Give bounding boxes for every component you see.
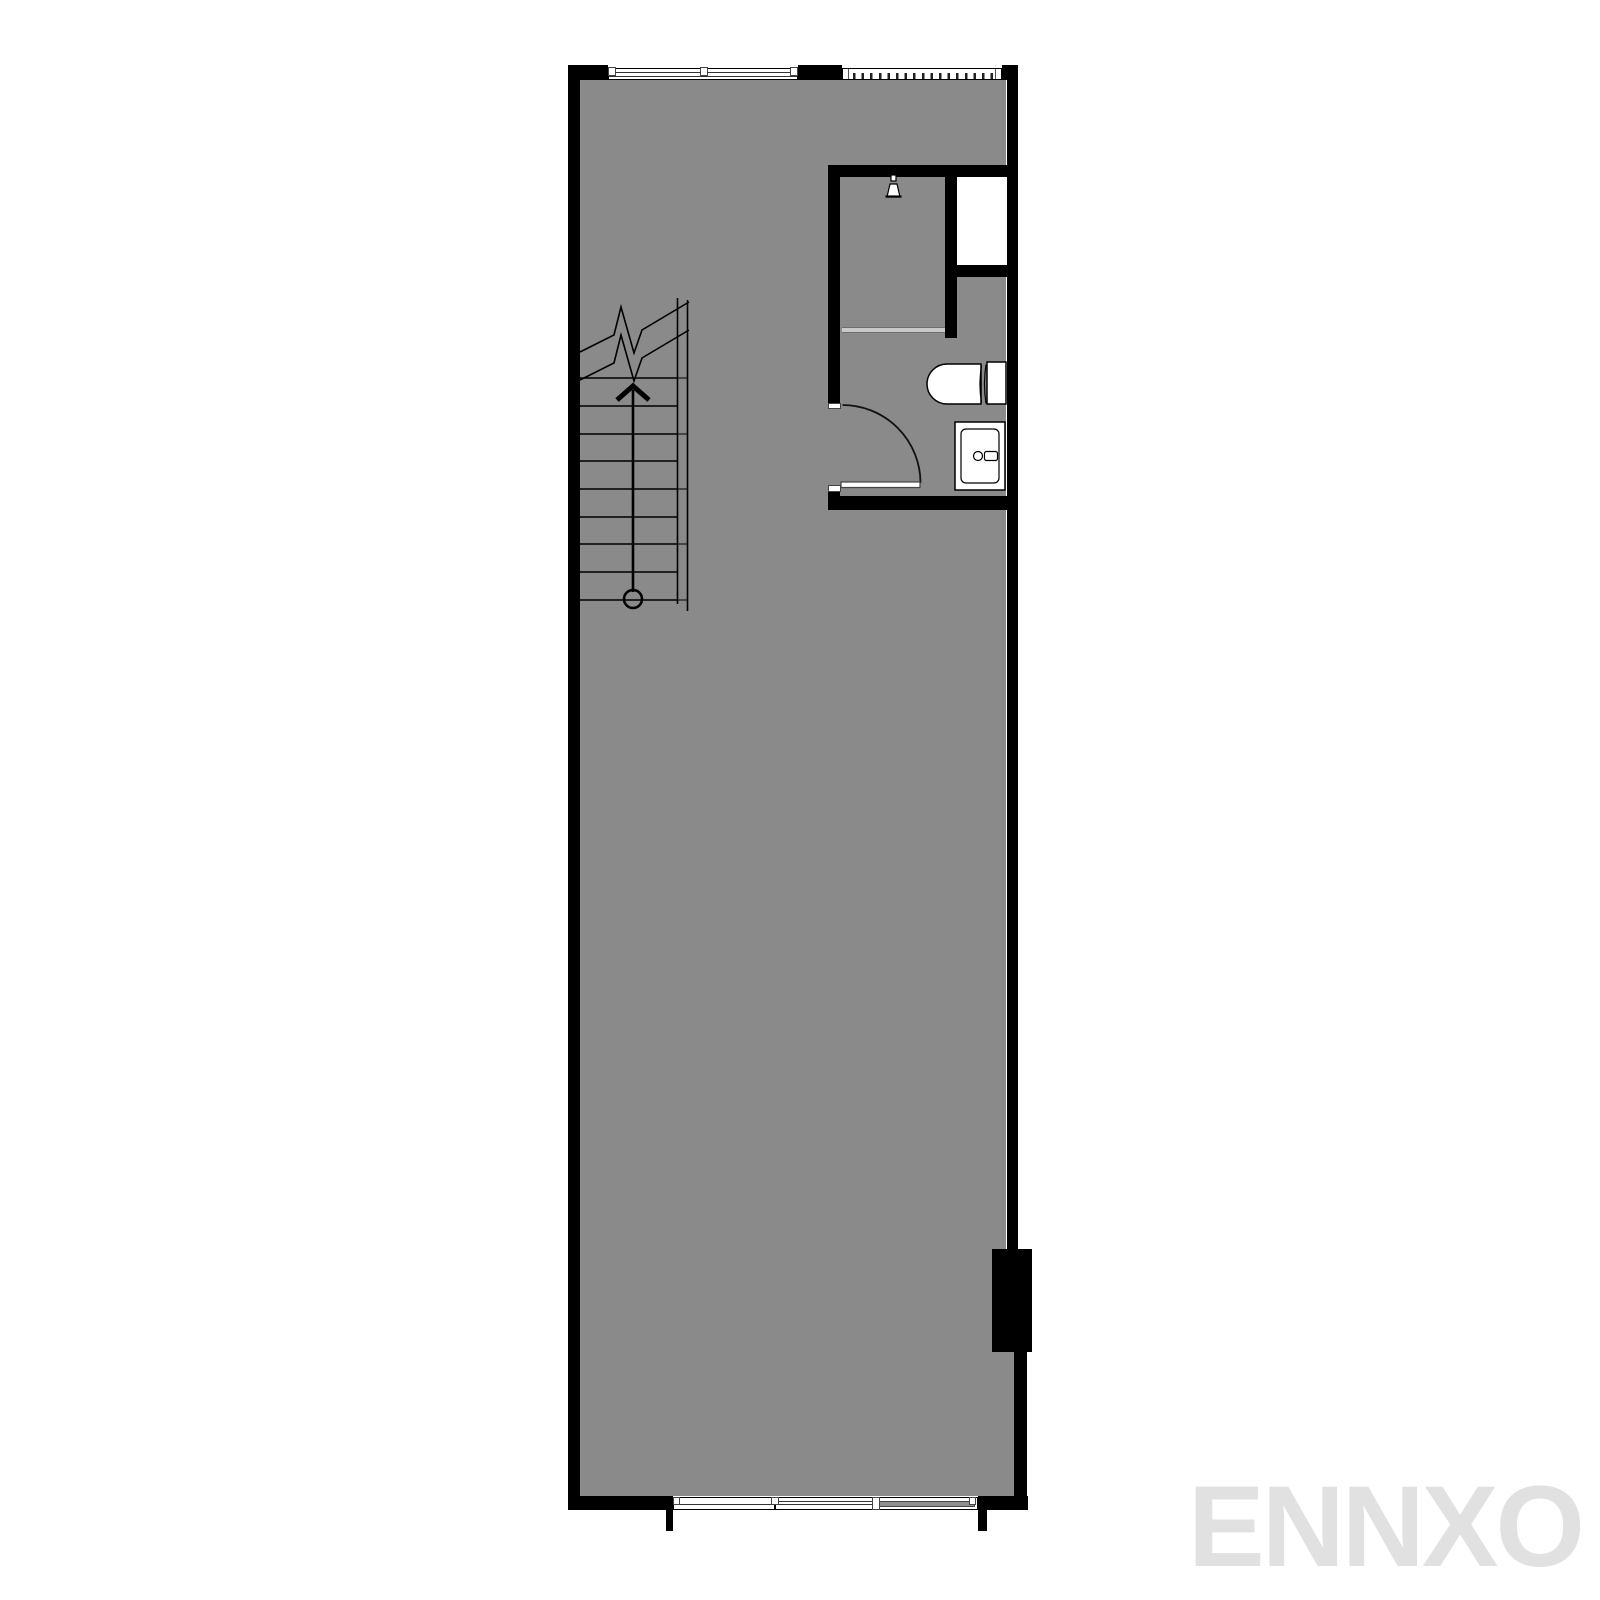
floor-plan: ENNXO	[0, 0, 1600, 1600]
fixture-linework	[0, 0, 1600, 1600]
shower-head-icon	[886, 175, 902, 197]
sink-drain	[974, 452, 983, 461]
door-swing-icon	[841, 405, 921, 488]
stairs-icon	[580, 298, 689, 611]
break-line-icon	[580, 302, 689, 353]
break-line-icon	[580, 330, 689, 381]
toilet-icon	[927, 362, 1006, 404]
sink-faucet	[985, 452, 998, 461]
watermark: ENNXO	[1188, 1470, 1582, 1585]
door-leaf	[841, 482, 920, 488]
stair-direction-arrow-icon	[617, 386, 649, 608]
sink-icon	[955, 422, 1005, 490]
toilet-tank	[987, 362, 1006, 404]
toilet-bowl	[927, 364, 981, 404]
